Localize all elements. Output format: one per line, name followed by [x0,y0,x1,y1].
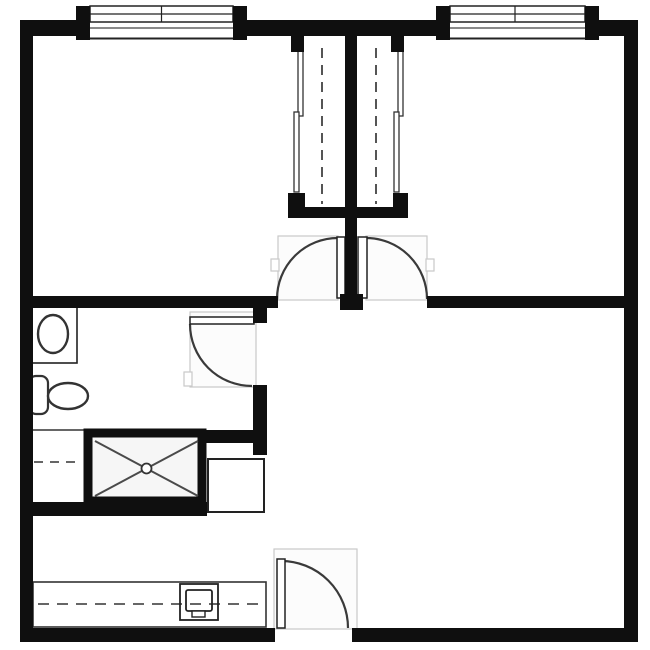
door-jamb-notch-bedroom-left [271,259,279,271]
door-jamb-notch-bathroom [184,372,192,386]
wall-closet-front [288,207,408,218]
floor-plan-drawing [0,0,650,650]
wall-right-exterior [624,20,638,642]
wall-bathroom-nook-stub [200,430,267,443]
floor-plan-page [0,0,650,650]
closet-jamb-top-left [291,36,304,52]
wall-closet-center [345,36,357,296]
utility-cabinet [208,459,264,512]
closet-jamb-top-right [391,36,404,52]
wall-bath-kitchen-divider [30,502,207,516]
wall-bottom-left-segment [20,628,275,642]
wall-bottom-right-segment [352,628,638,642]
window-left-jamb-b [233,6,247,40]
shower-drain [142,464,152,474]
closet-left-slider-panel-upper [298,48,303,116]
window-right-jamb-a [436,6,450,40]
wall-divider-right [427,296,638,308]
door-leaf-entry [277,559,285,628]
wall-divider-left [20,296,278,308]
wall-left-exterior [20,20,33,642]
door-leaf-bathroom [190,317,254,324]
sink-basin [38,315,68,353]
door-leaf-bedroom-right [358,237,367,298]
wall-divider-center-post [340,294,363,310]
door-leaf-bedroom-left [337,237,345,298]
door-jamb-notch-bedroom-right [426,259,434,271]
closet-right-slider-panel-lower [394,112,399,192]
closet-jamb-bottom-left [288,193,305,218]
wall-top-middle-segment [247,20,438,36]
window-right-jamb-b [585,6,599,40]
closet-right-slider-panel-upper [398,48,403,116]
window-left-jamb-a [76,6,90,40]
wall-bathroom-right [253,385,267,455]
wall-bathroom-door-stub [253,308,267,323]
closet-left-slider-panel-lower [294,112,299,192]
computer-base [192,611,205,617]
toilet-bowl [48,383,88,409]
closet-jamb-bottom-right [393,193,408,218]
